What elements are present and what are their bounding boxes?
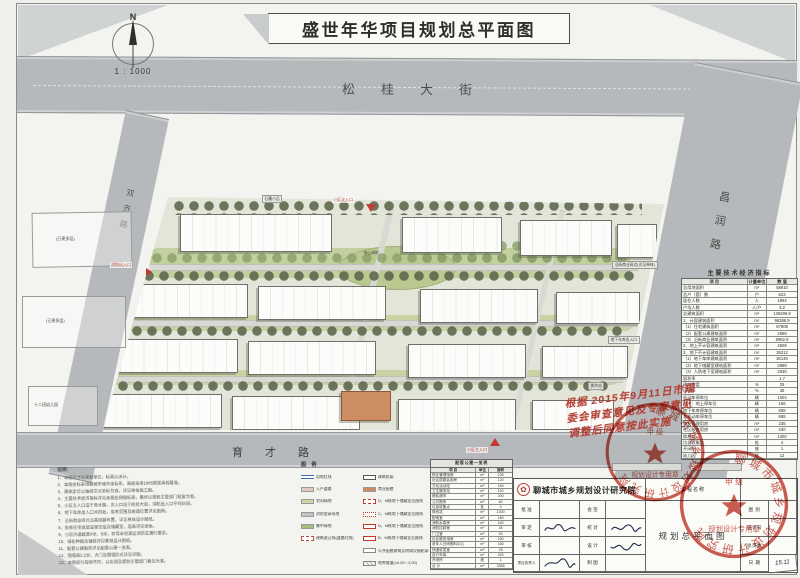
legend-item: 地库坡道(±0.00~-3.90) <box>363 557 429 569</box>
building-footprint <box>520 220 612 256</box>
field-value <box>606 555 646 572</box>
legend-label: 入户道路 <box>316 487 332 492</box>
signature <box>540 519 580 537</box>
building-footprint <box>420 289 538 323</box>
field-label: 设 计 <box>580 537 606 555</box>
neighbor-label: (已建多层) <box>46 318 65 323</box>
stamp-star-icon <box>721 494 746 517</box>
signature <box>606 519 646 537</box>
legend-column-right: 建筑轮廓商业配套D、M栋地下储藏室范围线C、M栋地下储藏室范围线N、M栋地下储藏… <box>363 471 429 569</box>
legend-item: D、M栋地下储藏室范围线 <box>363 496 429 508</box>
entrance-label: 小区次入口 <box>332 197 354 203</box>
signature <box>540 555 580 572</box>
legend-title: 图 例 <box>301 461 429 468</box>
building-footprint <box>402 217 502 253</box>
neighbor-label: 十二班幼儿园 <box>34 402 58 407</box>
institute-logo-icon: ✿ <box>517 483 530 496</box>
legend-swatch <box>363 499 376 504</box>
legend-label: 地库坡道(±0.00~-3.90) <box>378 561 417 566</box>
stamp-star-icon <box>644 443 667 464</box>
detail-table-panel: 配套公建一览表 项 目 单位 面积 物业管理用房m²235社区居委会用房m²12… <box>430 459 513 570</box>
legend-label: 商业配套 <box>378 487 394 492</box>
plan-callout: 石雕小品 <box>262 195 282 203</box>
legend-label: N、M栋地下储藏室范围线 <box>378 524 423 529</box>
legend-label: 消防登高场地 <box>316 512 339 517</box>
detail-unit: m² <box>476 564 489 569</box>
legend-label: D、M栋地下储藏室范围线 <box>378 499 423 504</box>
scanned-drawing-sheet: 松桂大街 昌润路 双齐路 育才路 <box>0 0 800 578</box>
legend-label: 宅间绿地 <box>316 499 332 504</box>
north-needle-tail <box>133 42 134 68</box>
legend-swatch <box>363 487 376 492</box>
legend-item: 建筑轮廓 <box>363 471 429 483</box>
legend-swatch <box>301 499 314 504</box>
building-footprint <box>108 339 238 373</box>
neighbor-label: (已建多层) <box>56 236 75 241</box>
legend-item: C、M栋地下储藏室范围线 <box>363 508 429 520</box>
stamp-subtitle-text: 规划设计专用章 <box>631 470 679 479</box>
signature-scribble-icon <box>543 522 577 534</box>
field-label: 审 定 <box>514 519 540 537</box>
legend-swatch <box>301 475 314 479</box>
detail-table-title: 配套公建一览表 <box>430 459 513 467</box>
legend-label: 用地红线 <box>316 475 332 480</box>
tree-cluster <box>112 270 637 283</box>
official-seal-stamp: 聊城市城乡规划设计研究院 甲 级 规划设计专用章 <box>677 447 791 561</box>
legend-label: 建筑轮廓 <box>378 475 394 480</box>
indicators-title: 主要技术经济指标 <box>681 268 798 277</box>
legend-item: N、M栋地下储藏室范围线 <box>363 520 429 532</box>
legend-swatch <box>363 548 376 553</box>
legend-swatch <box>363 536 376 541</box>
existing-building-outline <box>22 296 126 348</box>
building-footprint <box>180 214 332 252</box>
legend-item: 用地红线 <box>301 471 361 483</box>
legend-item: B、M栋地下储藏室范围线 <box>363 532 429 544</box>
legend-item: 商业配套 <box>363 483 429 495</box>
field-value <box>540 501 580 519</box>
legend-swatch <box>301 536 314 541</box>
legend-swatch <box>301 487 314 492</box>
north-arrow: N 1 : 1000 <box>98 12 168 84</box>
field-label: 批 准 <box>514 501 540 519</box>
scale-label: 1 : 1000 <box>98 67 168 76</box>
tree-cluster <box>100 325 625 338</box>
building-footprint <box>398 399 516 431</box>
drawing-title-banner: 盛世年华项目规划总平面图 <box>268 13 570 44</box>
stamp-grade-text: 甲 级 <box>647 427 664 436</box>
field-label: 审 核 <box>514 537 540 555</box>
legend-swatch <box>301 512 314 517</box>
legend-swatch <box>363 524 376 529</box>
legend-item: 入户道路 <box>301 483 361 495</box>
plan-callout: 地下车库出入口 <box>608 336 640 344</box>
detail-value: 3355 <box>489 564 512 569</box>
building-footprint <box>542 346 628 378</box>
legend-label: B、M栋地下储藏室范围线 <box>378 536 423 541</box>
legend-item: 集中绿地 <box>301 520 361 532</box>
kindergarten-building <box>341 391 391 421</box>
detail-row: 合 计m²3355 <box>431 564 512 569</box>
entrance-marker-icon <box>366 204 376 212</box>
stamp-subtitle-text: 规划设计专用章 <box>708 523 760 533</box>
field-value <box>540 537 580 555</box>
legend-item: 宅间绿地 <box>301 496 361 508</box>
building-footprint <box>408 344 526 378</box>
stamp-grade-text: 甲 级 <box>725 477 743 487</box>
road-label-right: 昌润路 <box>703 190 732 264</box>
signature-scribble-icon <box>609 522 643 534</box>
existing-building-outline <box>32 211 133 268</box>
building-footprint <box>617 224 657 258</box>
detail-table: 项 目 单位 面积 物业管理用房m²235社区居委会用房m²120文化活动站m²… <box>430 467 513 571</box>
entrance-marker-icon <box>490 438 500 446</box>
entrance-label: 消防出入口 <box>110 262 132 268</box>
legend-swatch <box>301 524 314 529</box>
signature-scribble-icon <box>609 540 643 552</box>
field-label: 制 图 <box>580 555 606 572</box>
legend-swatch <box>363 512 376 517</box>
detail-name: 合 计 <box>431 564 476 569</box>
plan-callout: 中心绿地 <box>362 250 380 256</box>
entrance-marker-icon <box>146 268 152 276</box>
plan-callout: 沿街商业网点(详见单体) <box>612 261 658 269</box>
building-footprint <box>556 292 640 324</box>
signature <box>606 537 646 555</box>
notes-block: 说明: 1、本图尺寸以米为单位，标高以米计。2、本图坐标采用聊城市城市坐标系，高… <box>57 462 299 566</box>
legend-label: 公共配套建筑及附属设施轮廓 <box>378 549 429 554</box>
legend-item: 公共配套建筑及附属设施轮廓 <box>363 545 429 557</box>
legend-label: 集中绿地 <box>316 524 332 529</box>
road-label-bottom: 育才路 <box>232 444 331 460</box>
legend-label: C、M栋地下储藏室范围线 <box>378 512 423 517</box>
legend-swatch <box>363 561 376 566</box>
signature-scribble-icon <box>543 557 577 569</box>
building-footprint <box>248 341 376 375</box>
legend-label: 建筑退让线(道路红线) <box>316 536 354 541</box>
building-footprint <box>258 286 386 320</box>
field-label: 项目负责人 <box>514 555 540 572</box>
field-label: 校 对 <box>580 519 606 537</box>
compass-circle-icon <box>112 23 154 65</box>
legend-swatch <box>363 475 376 480</box>
drawing-title: 盛世年华项目规划总平面图 <box>302 16 536 41</box>
entrance-label: 小区主入口 <box>466 447 488 453</box>
legend-item: 建筑退让线(道路红线) <box>301 532 361 544</box>
legend-panel: 图 例 用地红线入户道路宅间绿地消防登高场地集中绿地建筑退让线(道路红线) 建筑… <box>301 461 429 573</box>
legend-column-left: 用地红线入户道路宅间绿地消防登高场地集中绿地建筑退让线(道路红线) <box>301 471 361 545</box>
legend-item: 消防登高场地 <box>301 508 361 520</box>
plan-callout: 换热站 <box>588 382 604 390</box>
